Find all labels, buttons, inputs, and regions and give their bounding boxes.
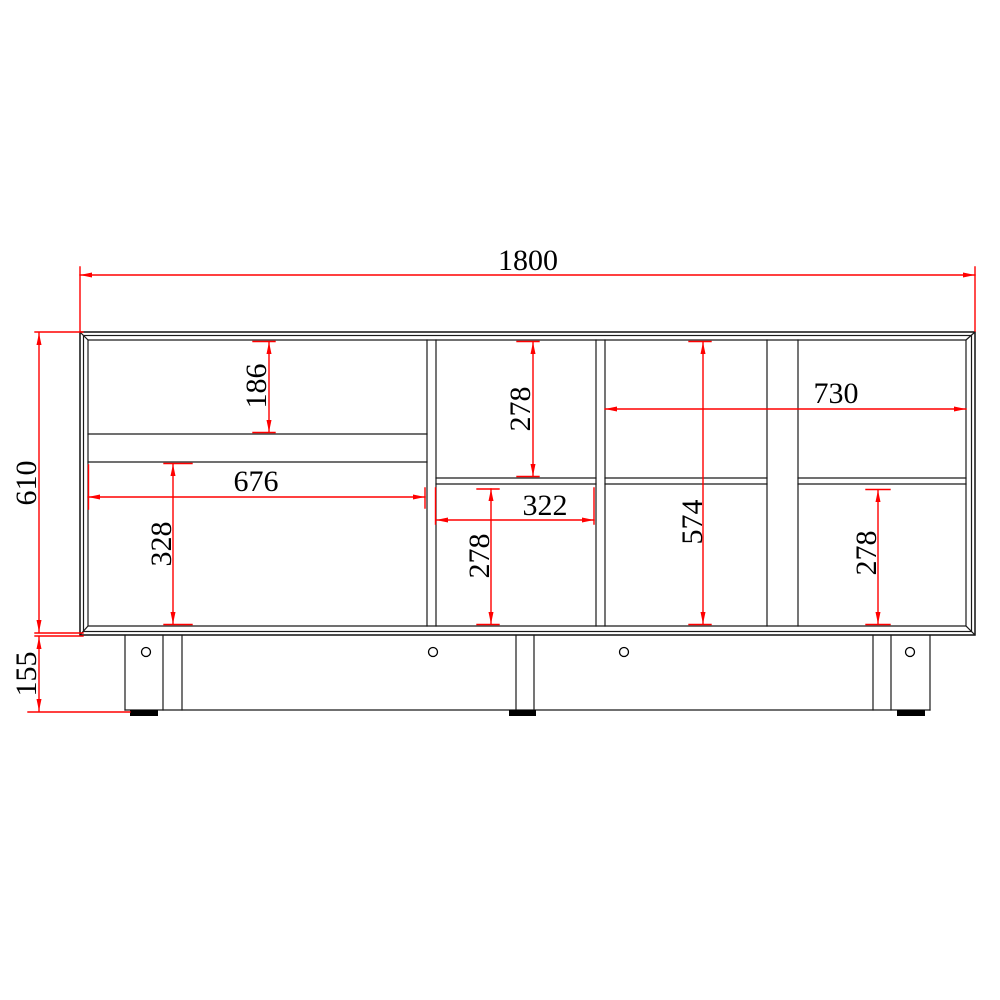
right-foot-pad	[897, 710, 925, 716]
technical-drawing-page: 1800 610 155 186 676 328 278 322	[0, 0, 1000, 1000]
dim-overall-width-1800: 1800	[80, 244, 975, 331]
base-legs-lines	[125, 635, 930, 710]
middle-right-shelf	[436, 478, 966, 484]
screw-hole	[906, 648, 915, 657]
dim-left-upper-height-186: 186	[240, 342, 275, 433]
dim-base-height-155: 155	[10, 636, 130, 712]
dim-right-lower-height-278: 278	[850, 490, 890, 625]
dim-label: 278	[463, 534, 496, 579]
screw-hole	[142, 648, 151, 657]
dim-middle-upper-height-278: 278	[504, 342, 539, 477]
dim-body-height-610: 610	[10, 332, 83, 633]
dim-right-opening-width-730: 730	[605, 377, 966, 410]
dim-label: 676	[234, 465, 279, 498]
dim-label: 186	[240, 364, 273, 409]
dim-extension-lines	[436, 488, 595, 524]
dim-label: 278	[504, 387, 537, 432]
dim-label: 155	[10, 652, 43, 697]
screw-hole	[620, 648, 629, 657]
dim-label: 1800	[498, 244, 558, 277]
left-foot-pad	[130, 710, 158, 716]
dim-left-lower-height-328: 328	[145, 464, 192, 625]
dim-interior-height-574: 574	[676, 342, 711, 625]
left-compartment-shelves	[88, 434, 427, 462]
dim-middle-width-322: 322	[436, 488, 595, 524]
dim-middle-lower-height-278: 278	[463, 489, 499, 625]
center-foot-pad	[509, 710, 536, 716]
dim-label: 328	[145, 522, 178, 567]
dim-label: 610	[10, 461, 43, 506]
plinth-base	[125, 635, 930, 716]
vertical-partitions	[427, 340, 798, 626]
dim-label: 322	[523, 489, 568, 522]
dim-label: 278	[850, 531, 883, 576]
screw-hole	[429, 648, 438, 657]
sideboard-front-elevation-drawing: 1800 610 155 186 676 328 278 322	[0, 0, 1000, 1000]
dim-ticks	[689, 342, 711, 625]
dim-left-width-676: 676	[88, 465, 425, 509]
dim-label: 574	[676, 500, 709, 545]
dim-extension-lines	[28, 636, 130, 712]
dim-label: 730	[814, 377, 859, 410]
